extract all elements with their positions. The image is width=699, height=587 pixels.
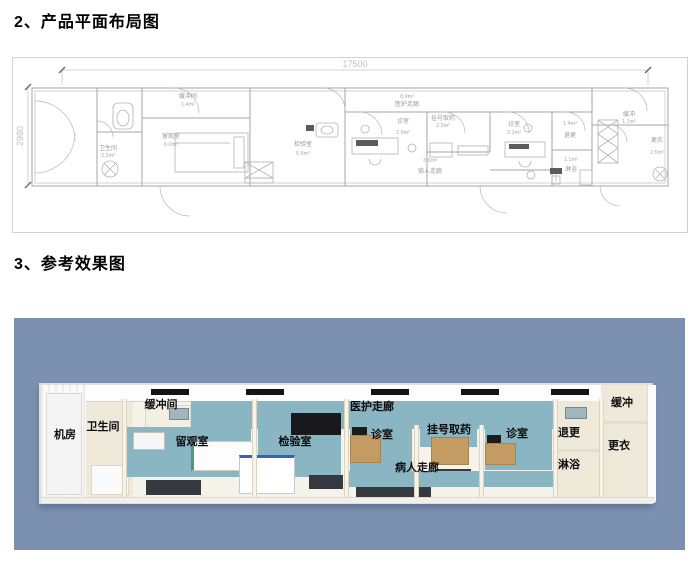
plan-label-buffer-name: 缓冲 [623,110,635,118]
plan-label-toilet-area: 2.2m² [101,153,115,159]
undress-window [565,407,587,419]
observation-window [133,432,165,450]
floor-mat [146,480,201,495]
ceiling-vent [371,389,409,395]
plan-label-clinic1-area: 2.9m² [396,130,410,136]
sink-icon [306,123,338,137]
dimension-height-value: 2980 [15,126,25,146]
plan-panel-border [13,58,688,233]
machine-room-door [46,393,82,495]
door-arcs [35,88,647,216]
plan-label-buffer-area: 1.1m² [622,119,636,125]
plan-label-clinic2-area: 2.2m² [507,130,521,136]
render-label-machine-room: 机房 [54,426,76,442]
dimension-top: 17500 [59,59,651,85]
floor-mat [309,475,343,489]
container-render [39,383,653,504]
plan-label-buffer-room-area: 1.4m² [181,102,195,108]
partition [479,425,484,497]
render-label-observation: 留观室 [176,433,209,449]
dimension-left: 2980 [15,84,31,188]
partition [252,399,257,497]
render-label-patient-corridor: 病人走廊 [395,459,439,475]
dimension-width-value: 17500 [342,59,367,69]
section2-heading: 2、产品平面布局图 [14,8,160,32]
render-label-lab: 检验室 [279,433,312,449]
partition [344,399,349,497]
counter-icon [430,143,488,157]
plan-label-changing-name: 更衣 [651,136,663,144]
buffer-divider [601,421,647,424]
plan-label-shower-area: 1.1m² [564,157,578,163]
plan-label-undress-area: 1.4m² [563,121,577,127]
plan-label-changing-area: 2.5m² [650,150,664,156]
right-end-cap [647,385,656,502]
plan-label-patient-corridor-area: 3.6m² [423,158,437,164]
plan-label-pharmacy-area: 2.3m² [436,123,450,129]
render-label-toilet: 卫生间 [87,418,120,434]
toilet-icon [113,103,133,129]
partition [122,399,127,497]
plan-label-clinic2-name: 诊室 [508,120,520,128]
render-label-clinic2: 诊室 [506,425,528,441]
render-label-clinic1: 诊室 [371,426,393,442]
plan-label-lab-area: 5.9m² [296,151,310,157]
partition [599,399,604,497]
plan-room-labels: 缓冲间 1.4m² 卫生间 2.2m² 留观室 6.0m² 检验室 5.9m² … [99,92,664,175]
render-label-undress: 退更 [558,424,580,440]
plan-label-toilet-name: 卫生间 [99,144,117,152]
render-label-shower: 淋浴 [558,456,580,472]
bed-icon [175,133,248,172]
plan-label-buffer-room-name: 缓冲间 [179,92,197,100]
ceiling-vent [461,389,499,395]
floor-plan-drawing: 17500 2980 [12,57,688,233]
cabinet-icon [245,162,273,183]
plan-label-clinic1-name: 诊室 [397,117,409,125]
section3-heading: 3、参考效果图 [14,250,126,274]
plan-label-lab-name: 检验室 [294,140,312,148]
ceiling-vent [246,389,284,395]
clinic2-desk [485,443,516,465]
furniture [102,103,667,185]
plan-label-undress-name: 退更 [564,131,576,139]
shower-head-icon [550,168,562,184]
plan-label-staff-corridor-name: 医护走廊 [395,100,419,108]
undress-divider [556,449,601,452]
plan-label-observation-area: 6.0m² [164,142,178,148]
patient-corridor-wall [346,471,556,487]
plan-label-patient-corridor-name: 病人走廊 [418,167,442,175]
render-label-buffer-room: 缓冲间 [145,396,178,412]
plan-label-pharmacy-name: 挂号取药 [431,114,455,122]
clinic1-chair [352,427,367,435]
plan-label-staff-corridor-area: 8.9m² [400,94,414,100]
lab-counter [291,413,341,435]
plan-label-observation-name: 留观室 [162,132,180,140]
lab-machine [239,455,295,494]
render-label-staff-corridor: 医护走廊 [350,398,394,414]
render-label-changing: 更衣 [608,437,630,453]
render-label-pharmacy: 挂号取药 [427,421,471,437]
clinic2-chair [487,435,501,443]
plan-label-shower-name: 淋浴 [565,165,577,173]
front-floor-edge [41,497,655,503]
ceiling-vent [151,389,189,395]
document-page: 2、产品平面布局图 17500 2980 [0,0,699,587]
render-panel: 机房 卫生间 缓冲间 留观室 检验室 医护走廊 诊室 挂号取药 诊室 病人走廊 … [14,318,685,550]
ceiling-vent [551,389,589,395]
render-label-buffer: 缓冲 [611,394,633,410]
partition [553,399,558,497]
locker-icon [598,120,618,163]
